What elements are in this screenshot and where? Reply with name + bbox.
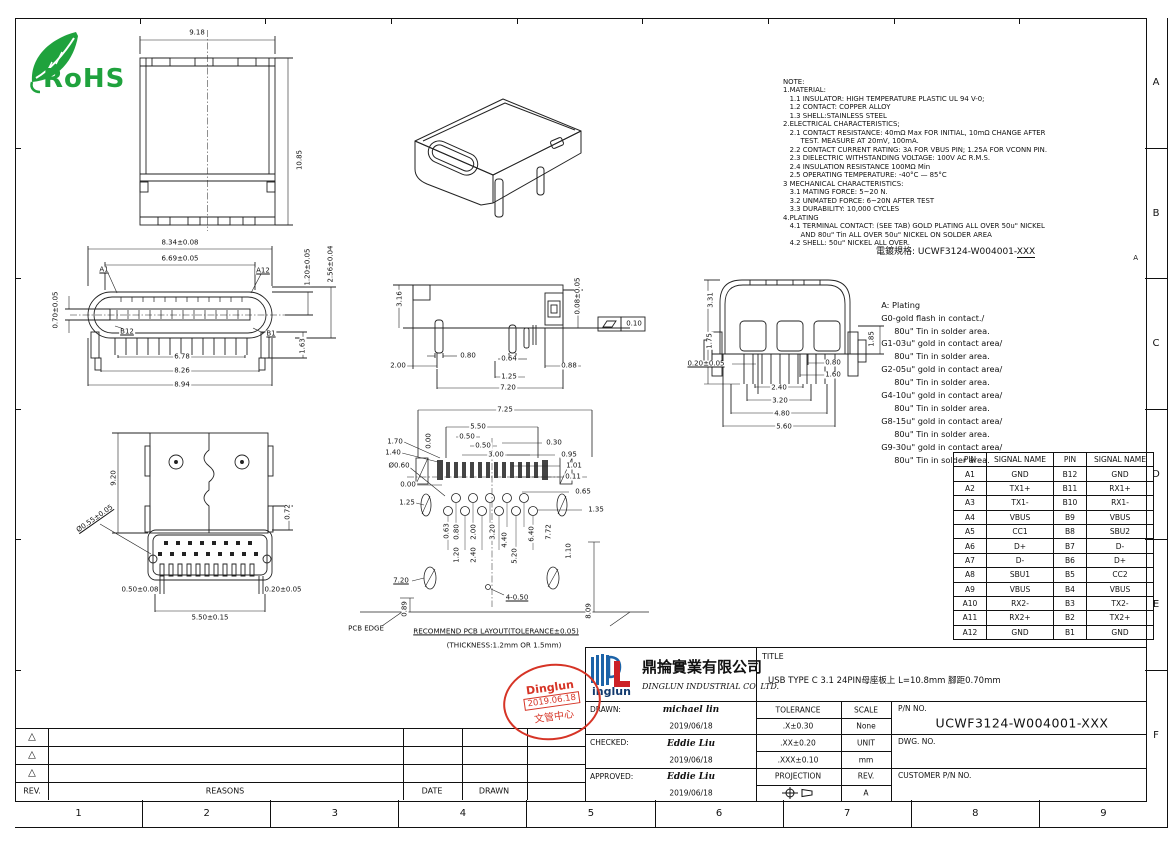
drawing-sheet: ABCDEF 123456789 RoHS 9.18 10.85	[0, 0, 1172, 842]
rohs-text: RoHS	[43, 64, 125, 94]
plating-line: 80u" Tin in solder area.	[876, 376, 1144, 389]
dim-label: 8.26	[173, 368, 191, 375]
dim-label: 0.00	[426, 432, 433, 450]
frame-outer-bottom	[15, 827, 1168, 828]
dim-label: 3.20	[771, 398, 789, 405]
pin-table-row: A6 D+ B7 D-	[954, 539, 1154, 553]
flatness-value: 0.10	[625, 321, 643, 328]
unit-label: UNIT	[857, 739, 875, 748]
note-line: 3.2 UNMATED FORCE: 6~20N AFTER TEST	[783, 197, 1143, 206]
dim-label: 8.94	[173, 382, 191, 389]
unit-value: mm	[859, 756, 874, 765]
plating-line: 80u" Tin in solder area.	[876, 402, 1144, 415]
frame-col-labels: 123456789	[15, 800, 1167, 827]
approved-date: 2019/06/18	[669, 789, 712, 798]
frame-col-label: 5	[527, 800, 655, 827]
dim-label: 0.80	[824, 360, 842, 367]
dim-label: 1.01	[565, 463, 583, 470]
frame-col-label: 4	[399, 800, 527, 827]
dim-label: 2.00	[389, 363, 407, 370]
signal-cell: VBUS	[1087, 510, 1154, 524]
dim-label: 0.50	[474, 443, 492, 450]
customer-pn-label: CUSTOMER P/N NO.	[898, 771, 971, 780]
dim-label: 1.20±0.05	[305, 247, 312, 286]
dim-label: 7.20	[392, 578, 410, 585]
dim-label: 5.50±0.15	[190, 615, 229, 622]
dim-label: 0.20±0.05	[263, 587, 302, 594]
signal-cell: CC2	[1087, 568, 1154, 582]
tolerance-xx: .XX±0.20	[780, 739, 816, 748]
frame-col-label: 2	[143, 800, 271, 827]
scale-value: None	[856, 722, 876, 731]
plating-rev-mark: A	[1133, 254, 1138, 262]
pin-cell: B1	[1054, 625, 1087, 639]
pin-cell: B11	[1054, 481, 1087, 495]
pin-callout-a1: A1	[98, 267, 109, 274]
pcb-note: RECOMMEND PCB LAYOUT(TOLERANCE±0.05)	[412, 627, 580, 634]
dim-label: 2.40	[770, 385, 788, 392]
pin-cell: B3	[1054, 596, 1087, 610]
revision-mark-icon: △	[28, 732, 36, 743]
dwg-no-label: DWG. NO.	[898, 737, 935, 746]
note-line: 2.4 INSULATION RESISTANCE 100MΩ Min	[783, 163, 1143, 172]
pin-cell: A6	[954, 539, 987, 553]
dim-label: 0.89	[402, 600, 409, 618]
tolerance-x: .X±0.30	[783, 722, 814, 731]
title-block: inglun 鼎掄實業有限公司 DINGLUN INDUSTRIAL CO. L…	[585, 647, 1146, 801]
signal-cell: RX1-	[1087, 496, 1154, 510]
dim-label: 6.69±0.05	[160, 256, 199, 263]
checked-name: Eddie Liu	[667, 739, 715, 749]
plating-line: 80u" Tin in solder area.	[876, 325, 1144, 338]
frame-col-label: 8	[912, 800, 1040, 827]
dim-label: 3.31	[708, 291, 715, 309]
dim-label: 5.20	[512, 547, 519, 565]
rev-label: REV.	[858, 772, 875, 781]
note-line: 4.1 TERMINAL CONTACT: (SEE TAB) GOLD PLA…	[783, 222, 1143, 231]
note-line: TEST. MEASURE AT 20mV, 100mA.	[783, 137, 1143, 146]
drawn-date: 2019/06/18	[669, 722, 712, 731]
signal-cell: GND	[987, 467, 1054, 481]
pin-cell: B8	[1054, 524, 1087, 538]
title-label: TITLE	[762, 652, 784, 661]
drawing-title: USB TYPE C 3.1 24PIN母座板上 L=10.8mm 腳距0.70…	[768, 674, 1001, 686]
note-line: 3.1 MATING FORCE: 5~20 N.	[783, 188, 1143, 197]
frame-outer-right	[1167, 18, 1168, 827]
plating-spec-block: 電鍍規格: UCWF3124-W004001-XXX A A: Plating …	[876, 244, 1144, 467]
projection-symbol-icon	[782, 787, 814, 799]
pin-cell: A1	[954, 467, 987, 481]
note-line: 1.2 CONTACT: COPPER ALLOY	[783, 103, 1143, 112]
dim-label: 4-0.50	[505, 595, 530, 602]
note-line: 1.3 SHELL:STAINLESS STEEL	[783, 112, 1143, 121]
pin-cell: A10	[954, 596, 987, 610]
scale-label: SCALE	[854, 706, 878, 715]
dim-label: 3.16	[397, 290, 404, 308]
plating-part-number: UCWF3124-W004001-	[918, 247, 1017, 257]
signal-cell: CC1	[987, 524, 1054, 538]
dim-label: 0.88	[560, 363, 578, 370]
pin-cell: B4	[1054, 582, 1087, 596]
dim-label: 7.25	[496, 407, 514, 414]
signal-cell: TX2-	[1087, 596, 1154, 610]
note-line: 1.MATERIAL:	[783, 86, 1143, 95]
signal-cell: TX1-	[987, 496, 1054, 510]
pin-callout-a12: A12	[255, 268, 271, 275]
date-col-label: DATE	[422, 787, 443, 796]
signal-col-header: SIGNAL NAME	[1087, 453, 1154, 467]
signal-cell: VBUS	[1087, 582, 1154, 596]
note-line: 1.1 INSULATOR: HIGH TEMPERATURE PLASTIC …	[783, 95, 1143, 104]
pin-cell: B5	[1054, 568, 1087, 582]
pin-cell: B2	[1054, 611, 1087, 625]
signal-cell: D-	[987, 553, 1054, 567]
pin-table-row: A7 D- B6 D+	[954, 553, 1154, 567]
dim-label: 1.40	[384, 450, 402, 457]
dim-label: Ø0.60	[387, 463, 410, 470]
pin-table-row: A2 TX1+ B11 RX1+	[954, 481, 1154, 495]
frame-row-label: A	[1145, 18, 1167, 149]
dim-label: 9.20	[111, 469, 118, 487]
approved-name: Eddie Liu	[667, 772, 715, 782]
signal-cell: GND	[1087, 467, 1154, 481]
dim-label: 5.60	[775, 424, 793, 431]
pin-cell: B7	[1054, 539, 1087, 553]
dim-label: 8.09	[586, 602, 593, 620]
signal-cell: VBUS	[987, 510, 1054, 524]
plating-line: G2-05u" gold in contact area/	[876, 363, 1144, 376]
dim-label: 2.56±0.04	[328, 244, 335, 283]
pin-table-row: A8 SBU1 B5 CC2	[954, 568, 1154, 582]
pin-col-header: PIN	[954, 453, 987, 467]
reasons-col-label: REASONS	[206, 787, 245, 796]
signal-cell: SBU2	[1087, 524, 1154, 538]
dim-label: 0.65	[574, 489, 592, 496]
pin-cell: A12	[954, 625, 987, 639]
signal-col-header: SIGNAL NAME	[987, 453, 1054, 467]
note-line: 4.PLATING	[783, 214, 1143, 223]
frame-row-label: F	[1145, 671, 1167, 801]
plating-line: G8-15u" gold in contact area/	[876, 415, 1144, 428]
dim-label: 0.30	[545, 440, 563, 447]
dim-label: 1.63	[300, 337, 307, 355]
dim-label: 10.85	[297, 149, 304, 171]
frame-row-label: B	[1145, 149, 1167, 280]
projection-label: PROJECTION	[775, 772, 821, 781]
approved-label: APPROVED:	[590, 772, 633, 781]
signal-cell: D-	[1087, 539, 1154, 553]
dim-label: 0.11	[564, 474, 582, 481]
plating-line: G4-10u" gold in contact area/	[876, 389, 1144, 402]
signal-cell: TX2+	[1087, 611, 1154, 625]
dim-label: 1.10	[566, 542, 573, 560]
revision-mark-icon: △	[28, 768, 36, 779]
frame-col-label: 9	[1040, 800, 1167, 827]
pin-table-row: A11 RX2+ B2 TX2+	[954, 611, 1154, 625]
dim-label: 8.34±0.08	[160, 240, 199, 247]
pin-cell: A3	[954, 496, 987, 510]
pin-table-row: A3 TX1- B10 RX1-	[954, 496, 1154, 510]
dim-label: 7.72	[546, 523, 553, 541]
rev-value: A	[863, 789, 868, 798]
signal-cell: SBU1	[987, 568, 1054, 582]
drawn-name: michael lin	[663, 705, 719, 715]
frame-col-label: 7	[784, 800, 912, 827]
company-name-en: DINGLUN INDUSTRIAL CO. LTD.	[642, 682, 779, 691]
pn-value: UCWF3124-W004001-XXX	[936, 716, 1109, 731]
pin-table-row: A9 VBUS B4 VBUS	[954, 582, 1154, 596]
pin-cell: B6	[1054, 553, 1087, 567]
dim-label: 0.08±0.05	[575, 276, 582, 315]
plating-line: 80u" Tin in solder area.	[876, 428, 1144, 441]
dim-label: 1.75	[707, 332, 714, 350]
frame-col-label: 6	[656, 800, 784, 827]
dim-label: 0.80	[454, 523, 461, 541]
pcb-note: (THICKNESS:1.2mm OR 1.5mm)	[446, 641, 563, 648]
dim-label: 7.20	[499, 385, 517, 392]
signal-cell: VBUS	[987, 582, 1054, 596]
signal-cell: TX1+	[987, 481, 1054, 495]
rev-col-label: REV.	[23, 787, 41, 796]
plating-line: G1-03u" gold in contact area/	[876, 337, 1144, 350]
signal-cell: RX1+	[1087, 481, 1154, 495]
note-line: 2.1 CONTACT RESISTANCE: 40mΩ Max FOR INI…	[783, 129, 1143, 138]
dim-label: 5.50	[469, 424, 487, 431]
plating-header-label: 電鍍規格:	[876, 247, 915, 257]
dim-label: 0.64	[500, 356, 518, 363]
note-line: 2.2 CONTACT CURRENT RATING: 3A FOR VBUS …	[783, 146, 1143, 155]
dim-label: 4.40	[502, 531, 509, 549]
dim-label: 0.63	[444, 522, 451, 540]
dim-label: 1.25	[500, 374, 518, 381]
pin-cell: A8	[954, 568, 987, 582]
pin-cell: A7	[954, 553, 987, 567]
pn-label: P/N NO.	[898, 704, 927, 713]
note-line: NOTE:	[783, 78, 1143, 87]
signal-cell: RX2+	[987, 611, 1054, 625]
frame-row-label: C	[1145, 279, 1167, 410]
dim-label: 0.70±0.05	[53, 290, 60, 329]
dim-label: 9.18	[188, 30, 206, 37]
dim-label: 0.72	[285, 503, 292, 521]
plating-line: 80u" Tin in solder area.	[876, 350, 1144, 363]
dim-label: 3.00	[487, 452, 505, 459]
pin-table-row: A5 CC1 B8 SBU2	[954, 524, 1154, 538]
frame-col-label: 1	[15, 800, 143, 827]
pin-cell: A2	[954, 481, 987, 495]
dim-label: 1.20	[454, 546, 461, 564]
signal-cell: GND	[1087, 625, 1154, 639]
dim-label: 0.50±0.08	[120, 587, 159, 594]
frame-col-label: 3	[271, 800, 399, 827]
tolerance-xxx: .XXX±0.10	[778, 756, 819, 765]
pin-callout-b12: B12	[119, 329, 135, 336]
revision-table: △ △ △ REV. REASONS DATE DRAWN	[15, 728, 585, 800]
note-line: 2.ELECTRICAL CHARACTERISTICS;	[783, 120, 1143, 129]
pin-table-row: A12 GND B1 GND	[954, 625, 1154, 639]
signal-cell: RX2-	[987, 596, 1054, 610]
signal-cell: D+	[1087, 553, 1154, 567]
dim-label: 3.20	[490, 523, 497, 541]
pin-table-row: A10 RX2- B3 TX2-	[954, 596, 1154, 610]
dim-label: 2.40	[471, 546, 478, 564]
view-isometric	[383, 83, 598, 238]
dim-label: 0.80	[459, 353, 477, 360]
dim-label: 0.20±0.05	[686, 361, 725, 368]
note-line: 2.3 DIELECTRIC WITHSTANDING VOLTAGE: 100…	[783, 154, 1143, 163]
revision-mark-icon: △	[28, 750, 36, 761]
plating-line: A: Plating	[876, 299, 1144, 312]
pcb-edge-label: PCB EDGE	[347, 626, 385, 633]
note-line: 3 MECHANICAL CHARACTERISTICS:	[783, 180, 1143, 189]
checked-date: 2019/06/18	[669, 756, 712, 765]
dim-label: 6.78	[173, 354, 191, 361]
dim-label: 1.35	[587, 507, 605, 514]
dim-label: 0.95	[560, 452, 578, 459]
company-name-cn: 鼎掄實業有限公司	[642, 656, 762, 677]
pin-col-header: PIN	[1054, 453, 1087, 467]
pin-cell: B10	[1054, 496, 1087, 510]
dim-label: 1.25	[398, 500, 416, 507]
pin-cell: A11	[954, 611, 987, 625]
signal-cell: D+	[987, 539, 1054, 553]
note-line: 2.5 OPERATING TEMPERATURE: -40°C — 85°C	[783, 171, 1143, 180]
pin-table: PIN SIGNAL NAME PIN SIGNAL NAME A1 GND B…	[953, 452, 1154, 640]
checked-label: CHECKED:	[590, 738, 629, 747]
dim-label: 1.70	[386, 439, 404, 446]
plating-part-suffix: XXX	[1017, 247, 1036, 258]
signal-cell: GND	[987, 625, 1054, 639]
dim-label: 2.00	[471, 523, 478, 541]
tolerance-label: TOLERANCE	[775, 706, 820, 715]
notes-block: NOTE:1.MATERIAL: 1.1 INSULATOR: HIGH TEM…	[783, 52, 1143, 248]
pin-table-row: A4 VBUS B9 VBUS	[954, 510, 1154, 524]
dim-label: 0.50	[458, 434, 476, 441]
plating-line: G0-gold flash in contact./	[876, 312, 1144, 325]
drawn-col-label: DRAWN	[479, 787, 509, 796]
view-bottom	[52, 418, 332, 643]
pin-callout-b1: B1	[265, 331, 276, 338]
dim-label: 1.60	[824, 372, 842, 379]
pin-cell: B9	[1054, 510, 1087, 524]
note-line: 3.3 DURABILITY: 10,000 CYCLES	[783, 205, 1143, 214]
view-top	[130, 24, 315, 234]
dim-label: 6.40	[529, 525, 536, 543]
dim-label: 1.85	[869, 330, 876, 348]
dim-label: 0.00	[399, 482, 417, 489]
frame-row-labels: ABCDEF	[1145, 18, 1167, 800]
note-line: AND 80u" Tin ALL OVER 50u" NICKEL ON SOL…	[783, 231, 1143, 240]
pin-cell: A5	[954, 524, 987, 538]
pin-cell: A9	[954, 582, 987, 596]
dim-label: 4.80	[773, 411, 791, 418]
pin-cell: B12	[1054, 467, 1087, 481]
frame-left-ticks	[15, 18, 21, 800]
pin-cell: A4	[954, 510, 987, 524]
pin-table-row: A1 GND B12 GND	[954, 467, 1154, 481]
